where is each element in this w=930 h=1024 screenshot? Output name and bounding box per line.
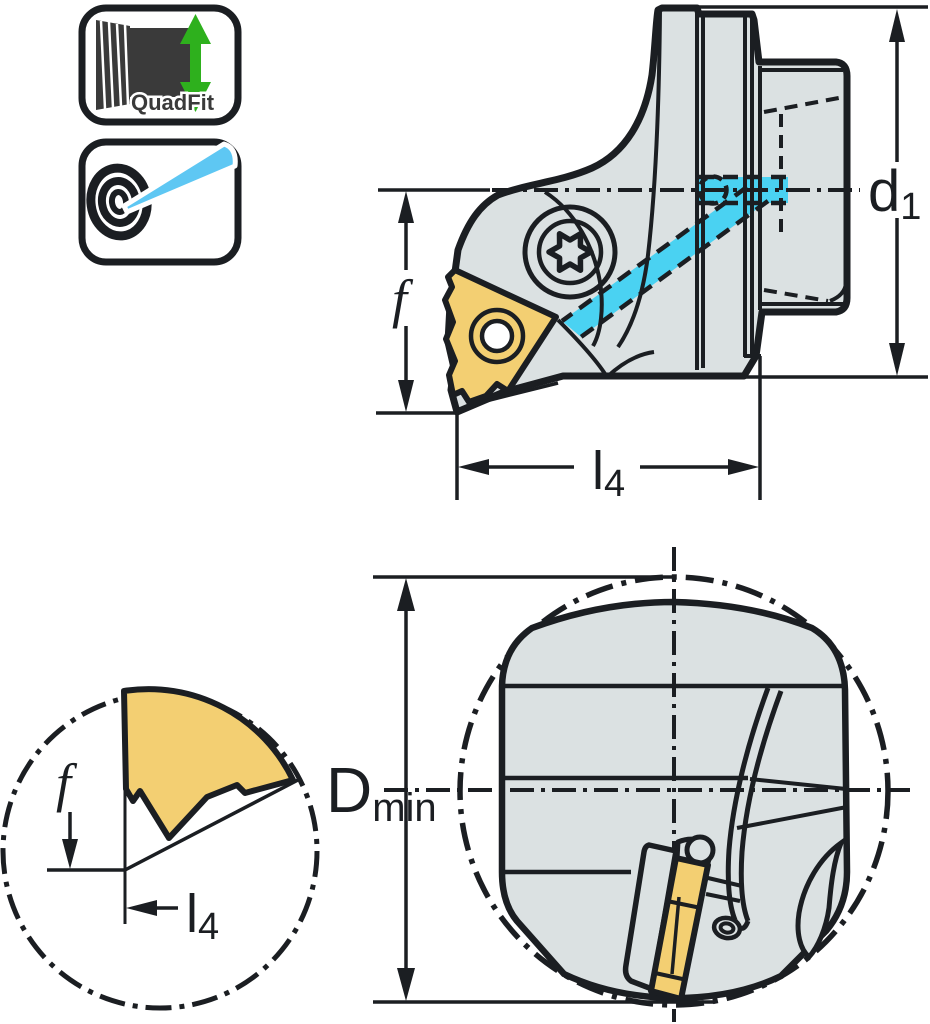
l4-arrow-left — [458, 459, 489, 475]
l4-base: l — [592, 441, 604, 501]
dmin-base: D — [326, 754, 372, 826]
f-detail-arrow — [62, 839, 78, 869]
dim-f-detail: f — [47, 753, 126, 870]
front-view-drawing: Dmin — [326, 547, 910, 1022]
l4-detail-arrow — [126, 900, 157, 916]
f-label: f — [392, 269, 414, 329]
dmin-arrow-down — [397, 968, 415, 1001]
insert-profile — [124, 689, 293, 838]
f-detail-label: f — [56, 753, 78, 813]
dim-l4-detail: l4 — [126, 884, 234, 948]
quadfit-label: QuadFit — [131, 90, 215, 115]
d1-base: d — [868, 159, 900, 224]
dmin-label: Dmin — [326, 754, 437, 830]
d1-arrow-down — [889, 343, 905, 376]
l4-sub: 4 — [604, 463, 625, 505]
dmin-sub: min — [372, 786, 436, 830]
dmin-arrow-up — [397, 578, 415, 611]
detail-view-drawing: f l4 — [3, 689, 317, 1008]
drawing-svg: QuadFit — [0, 0, 930, 1024]
precision-badge — [82, 142, 238, 262]
side-view-drawing: d1 f l4 — [376, 7, 930, 505]
dim-d1: d1 — [860, 9, 930, 376]
l4-detail-sub: 4 — [198, 906, 219, 948]
l4-arrow-right — [728, 459, 759, 475]
insert-hole-inner — [482, 321, 512, 351]
f-arrow-up — [398, 191, 414, 223]
d1-sub: 1 — [900, 186, 921, 228]
f-arrow-down — [398, 380, 414, 412]
technical-drawing-page: QuadFit — [0, 0, 930, 1024]
l4-detail-base: l — [186, 884, 198, 944]
d1-arrow-up — [889, 9, 905, 42]
quadfit-badge: QuadFit — [82, 8, 238, 122]
